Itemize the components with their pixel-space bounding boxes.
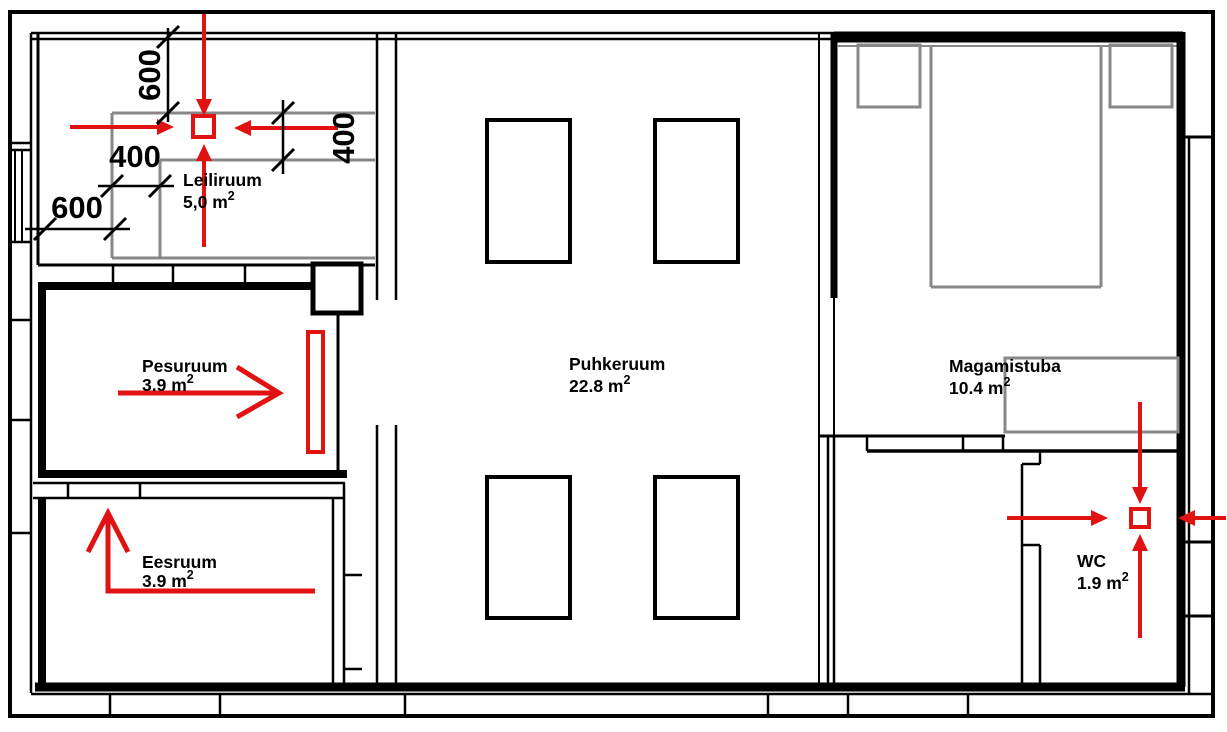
dimension-600-top: 600 (132, 26, 179, 124)
airflow-arrow-left-leiliruum (234, 120, 338, 136)
hallway-walls (828, 436, 834, 687)
wc-vent-marker (1131, 509, 1149, 527)
room-leiliruum (38, 14, 375, 284)
window (15, 150, 22, 242)
stove-chimney-block (313, 264, 361, 313)
dim-label-400-right: 400 (326, 112, 361, 164)
dim-label-600-bottom: 600 (51, 190, 103, 225)
table (655, 120, 738, 262)
dim-label-400-left: 400 (109, 139, 161, 174)
room-area-leiliruum: 5,0 m2 (183, 189, 235, 212)
dim-label-600-top: 600 (132, 49, 167, 101)
nightstand (1110, 45, 1172, 107)
room-label-eesruum: Eesruum (142, 552, 217, 572)
room-area-pesuruum: 3.9 m2 (142, 372, 194, 395)
room-area-magamistuba: 10.4 m2 (949, 375, 1010, 398)
room-wc (1007, 402, 1226, 687)
bed (931, 45, 1101, 287)
sauna-heater-marker (193, 116, 214, 137)
dimension-400-left: 400 (98, 139, 174, 197)
room-eesruum (33, 483, 362, 687)
dimension-600-bottom: 600 (25, 190, 130, 240)
table (655, 477, 738, 618)
room-area-eesruum: 3.9 m2 (142, 568, 194, 591)
room-area-puhkeruum: 22.8 m2 (569, 373, 630, 396)
table (487, 477, 570, 618)
radiator (308, 332, 323, 452)
airflow-arrow-down-wc (1132, 402, 1148, 504)
room-label-puhkeruum: Puhkeruum (569, 354, 665, 374)
room-label-wc: WC (1077, 551, 1107, 571)
room-area-wc: 1.9 m2 (1077, 570, 1129, 593)
nightstand (858, 45, 920, 107)
airflow-arrow-up-wc (1132, 534, 1148, 638)
room-label-leiliruum: Leiliruum (183, 170, 262, 190)
floor-plan-canvas: 600 400 400 600 (0, 0, 1227, 732)
dimension-400-right: 400 (272, 100, 361, 174)
room-label-magamistuba: Magamistuba (949, 356, 1061, 376)
table (487, 120, 570, 262)
floor-plan-page: 600 400 400 600 (0, 0, 1227, 732)
room-label-pesuruum: Pesuruum (142, 356, 228, 376)
room-labels: Leiliruum 5,0 m2 Pesuruum 3.9 m2 Eesruum… (142, 170, 1129, 593)
airflow-arrow-down-leiliruum (196, 14, 212, 116)
